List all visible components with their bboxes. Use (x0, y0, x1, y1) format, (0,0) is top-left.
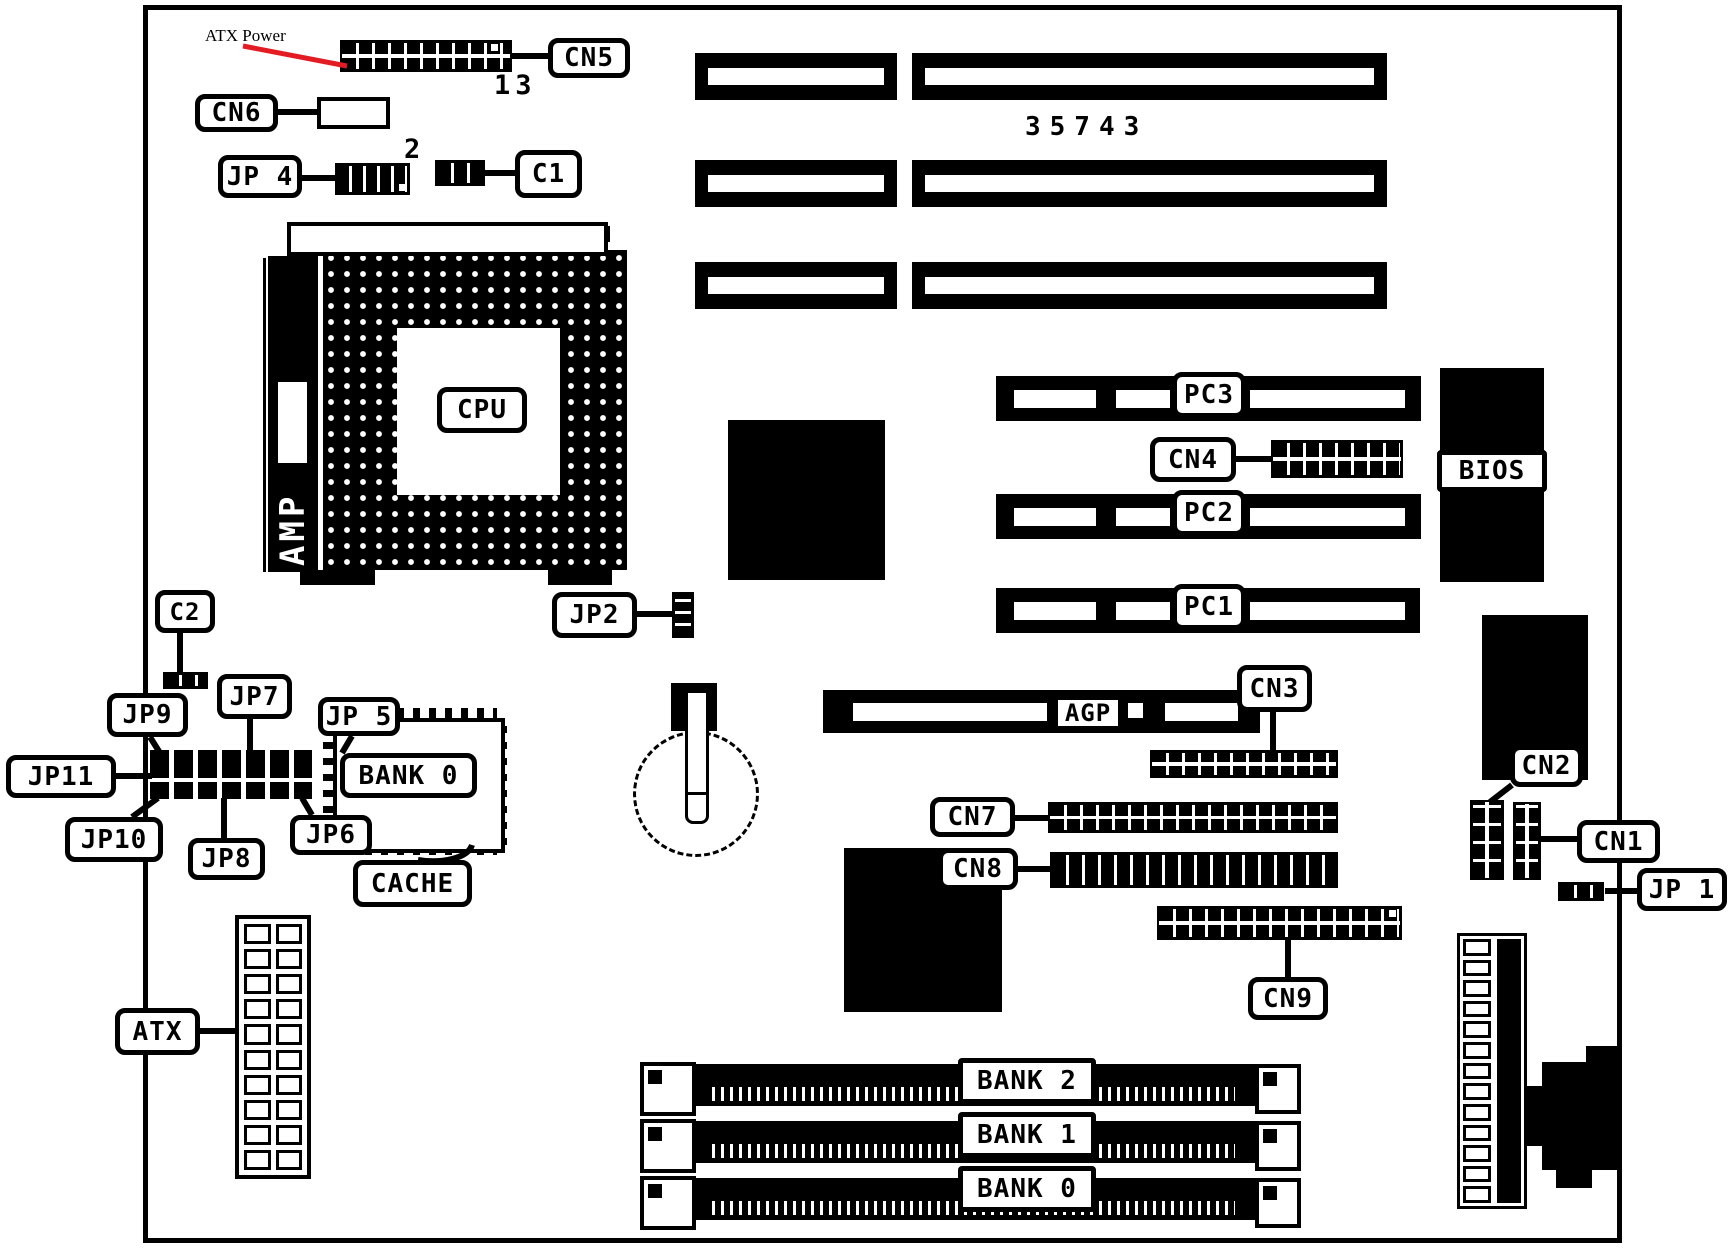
label-cache: CACHE (353, 860, 472, 907)
label-cn2: CN2 (1510, 745, 1583, 787)
label-cn8: CN8 (938, 848, 1018, 890)
label-cn6: CN6 (195, 94, 278, 132)
label-jp5: JP 5 (318, 697, 400, 736)
label-jp10: JP10 (65, 817, 163, 862)
label-cpu: CPU (437, 387, 527, 433)
label-bios: BIOS (1437, 450, 1547, 492)
label-cn1: CN1 (1577, 820, 1660, 863)
label-pc3: PC3 (1172, 372, 1246, 418)
label-cn7: CN7 (930, 797, 1015, 837)
atx-power-arrow (243, 46, 347, 66)
label-bank2: BANK 2 (958, 1058, 1096, 1104)
label-jp8: JP8 (188, 838, 265, 880)
label-jp11: JP11 (6, 755, 116, 798)
label-jp4: JP 4 (218, 155, 302, 198)
label-pc2: PC2 (1172, 490, 1246, 536)
label-jp1: JP 1 (1637, 868, 1727, 911)
label-bank0: BANK 0 (958, 1166, 1096, 1212)
cn5-pin13-text: 13 (494, 70, 537, 101)
part-number: 35743 (1025, 112, 1148, 142)
motherboard-diagram: ATX Power CN5 13 CN6 JP 4 2 C1 35743 AMP… (0, 0, 1731, 1248)
label-jp2: JP2 (552, 592, 637, 638)
label-bank1: BANK 1 (958, 1112, 1096, 1158)
label-cn5: CN5 (548, 38, 630, 78)
atx-power-note: ATX Power (205, 26, 286, 46)
label-atx: ATX (115, 1008, 200, 1055)
label-cn9: CN9 (1248, 977, 1328, 1020)
label-bank0-cache: BANK 0 (340, 753, 477, 798)
label-jp9: JP9 (107, 693, 188, 737)
label-pc1: PC1 (1172, 584, 1246, 630)
label-jp7: JP7 (217, 674, 292, 719)
label-c2: C2 (155, 590, 215, 633)
jp4-pin2-text: 2 (404, 134, 420, 165)
label-agp: AGP (1053, 695, 1123, 731)
label-c1: C1 (515, 150, 582, 198)
label-cn3: CN3 (1237, 665, 1312, 712)
label-jp6: JP6 (290, 815, 372, 855)
label-cn4: CN4 (1150, 437, 1236, 482)
